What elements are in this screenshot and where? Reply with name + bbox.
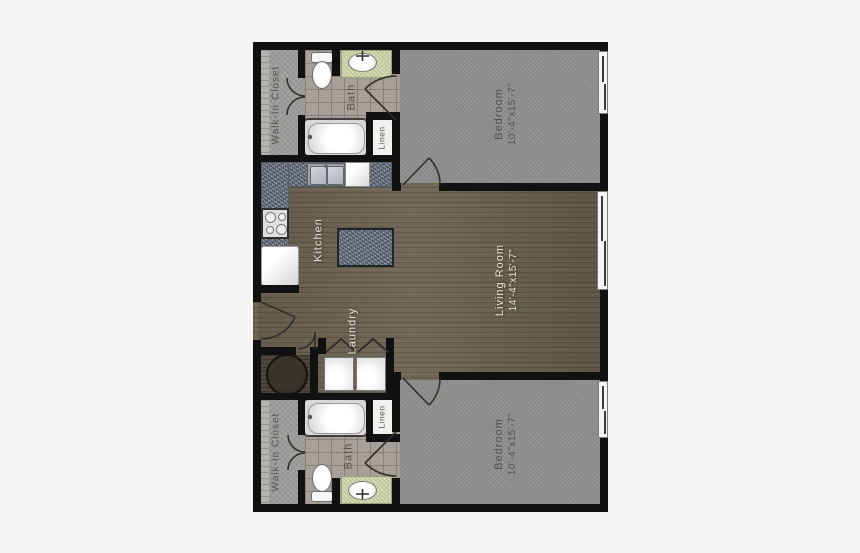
room-label-linen-bottom: Linen <box>376 405 389 428</box>
wall-segment <box>600 42 608 51</box>
wall-segment <box>253 155 400 162</box>
wall-segment <box>392 380 400 432</box>
bathtub-top <box>303 118 368 157</box>
window-bedroom-bottom <box>598 381 608 438</box>
room-label-laundry: Laundry <box>347 308 360 355</box>
bathtub-basin <box>308 123 365 154</box>
closet-shelving-bottom <box>261 400 269 504</box>
wall-segment <box>298 400 305 435</box>
kitchen-island <box>337 228 394 267</box>
dryer <box>356 357 386 391</box>
wall-segment <box>392 478 400 504</box>
wall-segment <box>253 347 296 355</box>
burner-icon <box>278 213 286 221</box>
room-label-kitchen: Kitchen <box>313 218 326 262</box>
wall-segment <box>600 114 608 192</box>
entry-threshold <box>253 302 261 340</box>
closet-shelving-top <box>261 50 269 155</box>
room-label-bedroom-bottom: Bedroom 10'-4"x15'-7" <box>493 413 519 475</box>
window-pane <box>604 84 606 110</box>
water-heater <box>266 354 308 396</box>
wall-segment <box>253 42 261 302</box>
wall-segment <box>392 120 400 183</box>
wall-segment <box>392 183 401 191</box>
wall-segment <box>392 372 401 380</box>
floor-plan: Walk-In Closet Bath Linen Bedroom 10'-4"… <box>253 42 608 512</box>
sliding-panel <box>601 196 603 241</box>
kitchen-counter-left <box>261 162 289 210</box>
room-label-linen-top: Linen <box>376 126 389 149</box>
sink-basin-right <box>327 166 344 185</box>
toilet-bowl <box>312 61 332 89</box>
wall-segment <box>439 183 608 191</box>
wall-segment <box>439 372 608 380</box>
wall-segment <box>366 120 373 158</box>
room-label-walk-in-closet-top: Walk-In Closet <box>270 66 283 145</box>
wall-segment <box>366 400 373 434</box>
toilet-bowl <box>312 464 332 492</box>
bathtub-bottom <box>303 398 368 437</box>
room-label-bedroom-top: Bedroom 10'-4"x15'-7" <box>493 83 519 145</box>
floor-plan-canvas: Walk-In Closet Bath Linen Bedroom 10'-4"… <box>0 0 860 553</box>
wall-segment <box>253 285 299 293</box>
room-label-walk-in-closet-bottom: Walk-In Closet <box>270 413 283 492</box>
wall-segment <box>318 338 326 354</box>
window-pane <box>604 411 606 434</box>
washer <box>324 357 354 391</box>
bathtub-basin <box>308 403 365 434</box>
refrigerator <box>261 246 299 286</box>
dishwasher <box>345 162 370 187</box>
wall-segment <box>600 290 608 381</box>
room-label-bath-top: Bath <box>346 84 359 111</box>
room-label-living-room: Living Room 14'-4"x15'-7" <box>494 244 520 316</box>
wall-segment <box>332 478 340 504</box>
wall-segment <box>253 504 608 512</box>
kitchen-sink <box>307 163 345 186</box>
range-cooktop <box>261 208 289 239</box>
window-bedroom-top <box>598 51 608 114</box>
wall-segment <box>600 438 608 512</box>
wall-segment <box>332 42 340 76</box>
window-pane <box>602 386 604 409</box>
burner-icon <box>265 212 276 223</box>
wall-segment <box>253 340 261 512</box>
vanity-sink <box>348 481 377 500</box>
wall-segment <box>253 42 608 50</box>
sliding-panel <box>604 241 606 286</box>
wall-segment <box>298 115 305 155</box>
wall-segment <box>298 42 305 78</box>
burner-icon <box>266 226 274 234</box>
sliding-door-living-room <box>597 191 608 290</box>
toilet-tank <box>311 491 333 502</box>
wall-segment <box>366 434 400 442</box>
window-pane <box>602 56 604 82</box>
wall-segment <box>253 393 400 400</box>
wall-segment <box>392 42 400 74</box>
burner-icon <box>276 224 287 235</box>
wall-segment <box>298 470 305 504</box>
sink-basin-left <box>310 166 327 185</box>
wall-segment <box>366 112 400 120</box>
vanity-sink <box>348 53 377 72</box>
room-label-bath-bottom: Bath <box>343 443 356 470</box>
